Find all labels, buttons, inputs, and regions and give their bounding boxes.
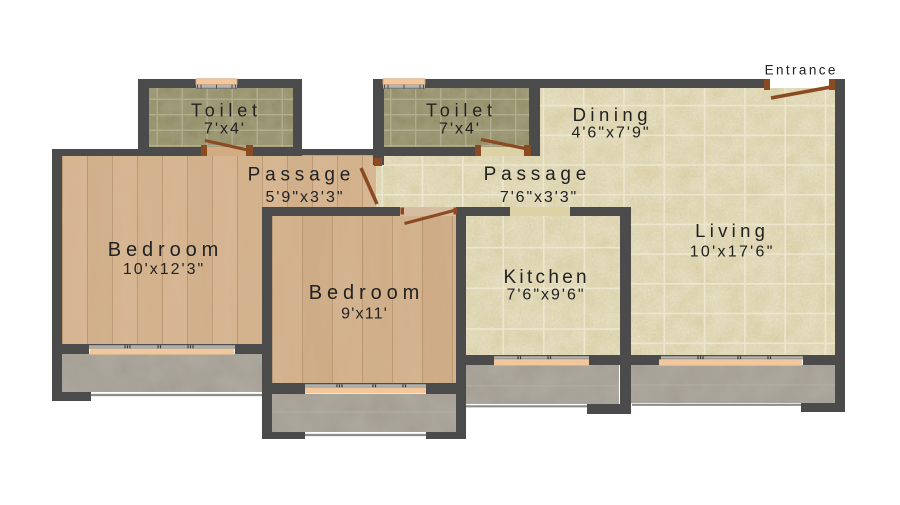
svg-text:Living: Living	[695, 220, 769, 241]
svg-text:Passage: Passage	[248, 165, 356, 186]
svg-text:Toilet: Toilet	[191, 101, 262, 121]
svg-text:10'x12'3": 10'x12'3"	[123, 261, 205, 278]
svg-text:Entrance: Entrance	[765, 63, 838, 78]
svg-text:Passage: Passage	[484, 164, 592, 185]
svg-text:Kitchen: Kitchen	[503, 267, 589, 288]
svg-text:5'9"x3'3": 5'9"x3'3"	[265, 189, 344, 206]
svg-text:Bedroom: Bedroom	[108, 239, 223, 261]
svg-text:7'6"x3'3": 7'6"x3'3"	[500, 189, 578, 206]
svg-text:9'x11': 9'x11'	[341, 306, 388, 323]
svg-text:Bedroom: Bedroom	[309, 282, 424, 304]
svg-text:7'x4': 7'x4'	[439, 121, 481, 138]
svg-text:4'6"x7'9": 4'6"x7'9"	[571, 125, 650, 142]
svg-text:Toilet: Toilet	[426, 101, 497, 121]
svg-text:10'x17'6": 10'x17'6"	[690, 244, 775, 261]
svg-text:Dining: Dining	[573, 104, 652, 125]
svg-text:7'x4': 7'x4'	[204, 121, 246, 138]
svg-text:7'6"x9'6": 7'6"x9'6"	[506, 287, 585, 304]
